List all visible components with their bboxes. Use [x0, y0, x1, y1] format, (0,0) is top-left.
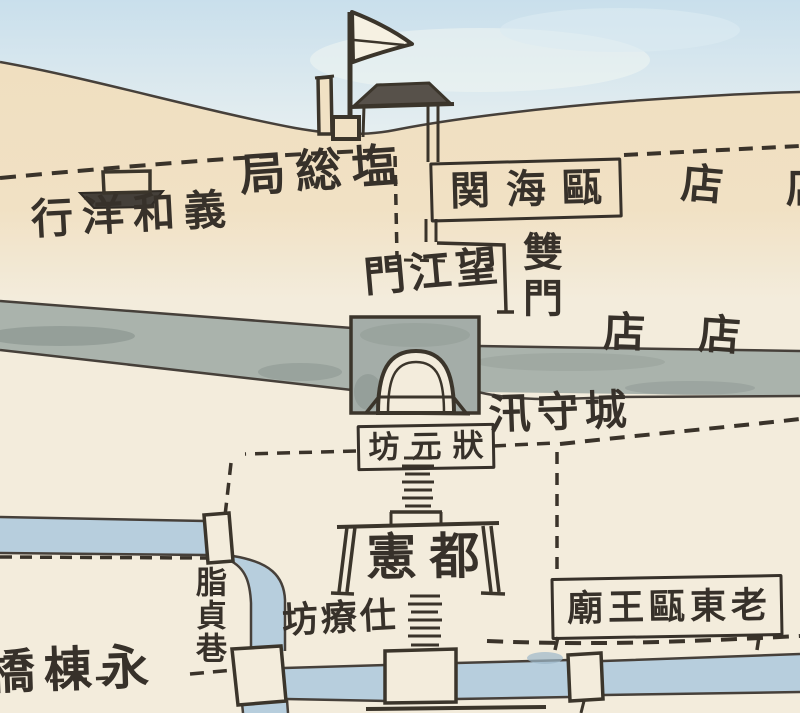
- label-yihe-trading-house: 行洋和義: [30, 188, 236, 241]
- bridge-southeast: [568, 653, 603, 713]
- label-salt-bureau: 局総塩: [238, 141, 409, 199]
- canal-south: [284, 652, 800, 709]
- label-wangjiang-gate: 門江望: [362, 245, 503, 299]
- historical-map-scan: 局総塩 関海甌 行洋和義 店 店 門江望 雙門 店 店 汛守城 坊元狀 憲都 脂…: [0, 0, 800, 713]
- label-shop-street-right: 店: [697, 313, 742, 358]
- label-zhizhen-lane: 脂貞巷: [192, 566, 223, 665]
- label-box-zhuangyuan-fang: 坊元狀: [357, 423, 496, 471]
- label-box-customs: 関海甌: [429, 157, 623, 222]
- label-du-xian-arch: 憲都: [366, 531, 493, 583]
- label-shop-hill-edge: 店: [786, 167, 800, 209]
- label-city-garrison: 汛守城: [488, 389, 633, 436]
- label-shop-hill: 店: [679, 162, 725, 208]
- label-shiliao-fang: 坊療仕: [281, 597, 400, 639]
- chimney-pole-icon: [315, 76, 334, 134]
- canal-west: [0, 517, 206, 555]
- label-yongdong-bridge: 橋棟永: [0, 643, 159, 697]
- label-zhuangyuan-text: 坊元狀: [368, 430, 495, 463]
- bridge-southwest: [232, 646, 286, 705]
- label-box-old-dongou-king-temple: 廟王甌東老: [550, 574, 783, 640]
- label-customs-text: 関海甌: [450, 168, 619, 212]
- label-temple-text: 廟王甌東老: [567, 587, 773, 627]
- label-double-gate: 雙門: [519, 231, 559, 323]
- city-gate-icon: [351, 317, 479, 414]
- bridge-center: [385, 649, 456, 703]
- bridge-northwest: [204, 513, 233, 563]
- label-shop-street-left: 店: [603, 311, 646, 354]
- stepped-path-lower: [408, 596, 442, 645]
